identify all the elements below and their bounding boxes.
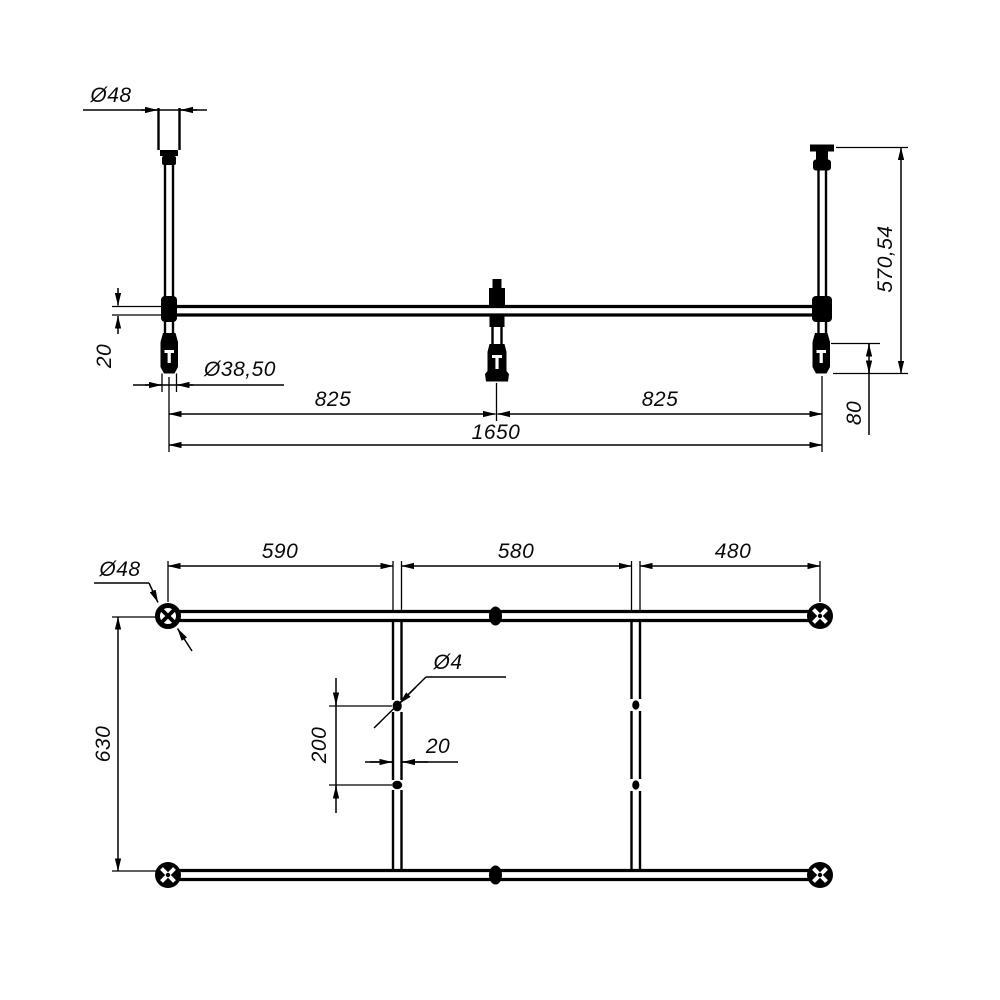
plan-center-post-top (489, 607, 502, 626)
hole-mark (632, 780, 639, 789)
elevation-view (83, 108, 908, 452)
drawing-linework (0, 0, 1000, 1000)
plan-cross-member-right (632, 622, 641, 870)
plan-dia48-label: Ø48 (99, 558, 140, 582)
elevation-20-label: 20 (93, 344, 117, 368)
plan-foot-bottom-left (155, 862, 181, 888)
elevation-dia3850-label: Ø38,50 (204, 358, 276, 382)
plan-dim-200 (329, 678, 392, 813)
hole-mark (632, 700, 639, 709)
plan-foot-bottom-right (807, 862, 833, 888)
plan-foot-top-right (807, 603, 833, 629)
elevation-80-label: 80 (843, 401, 867, 425)
plan-foot-top-left (158, 606, 179, 627)
plan-590-label: 590 (262, 540, 299, 564)
elevation-middle-post (485, 279, 509, 382)
plan-480-label: 480 (715, 540, 752, 564)
elevation-1650-label: 1650 (472, 421, 521, 445)
hole-mark (392, 781, 402, 789)
elevation-825-left-label: 825 (315, 388, 352, 412)
plan-cross-member-left (392, 622, 402, 870)
plan-dia4-label: Ø4 (433, 651, 462, 675)
plan-center-post-bottom (489, 866, 502, 885)
plan-dim-630 (112, 617, 160, 871)
plan-630-label: 630 (92, 726, 116, 763)
elevation-825-right-label: 825 (642, 388, 679, 412)
plan-20-label: 20 (426, 735, 450, 759)
elevation-dim-20 (112, 288, 163, 334)
elevation-height-label: 570,54 (874, 225, 898, 292)
elevation-dia48-label: Ø48 (90, 84, 131, 108)
elevation-right-post (810, 145, 834, 374)
plan-view (94, 561, 833, 888)
plan-200-label: 200 (308, 727, 332, 764)
technical-drawing-canvas: Ø48 20 Ø38,50 825 825 1650 570,54 80 Ø48… (0, 0, 1000, 1000)
elevation-left-post (159, 108, 180, 392)
plan-580-label: 580 (498, 540, 535, 564)
plan-dim-segments (168, 561, 820, 610)
